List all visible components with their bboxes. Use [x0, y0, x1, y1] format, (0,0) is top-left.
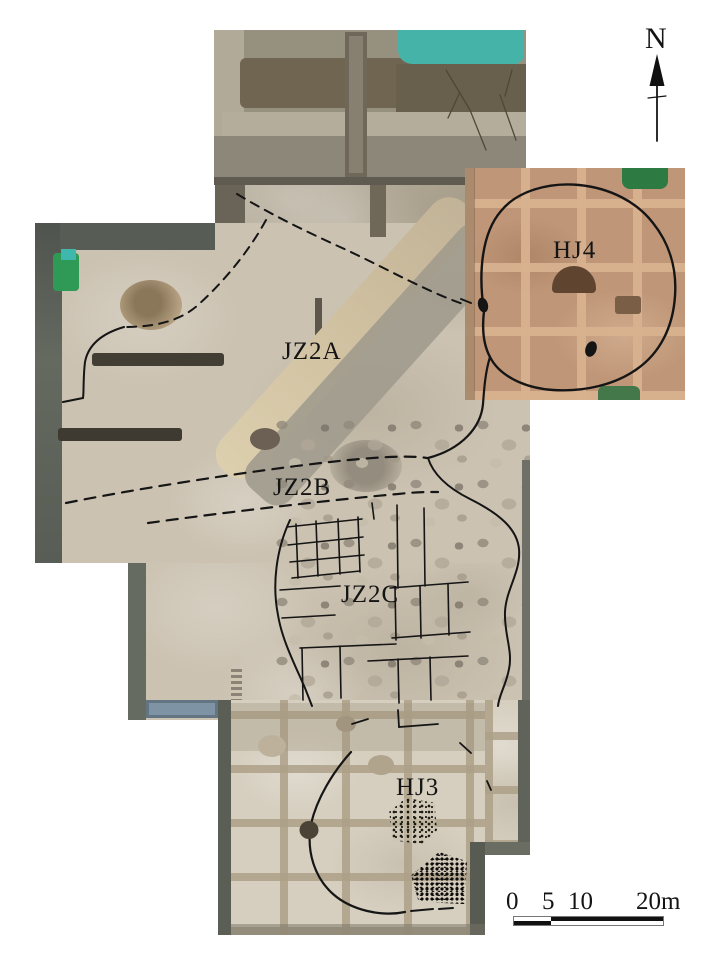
hj4-dark-cell: [615, 296, 641, 314]
feature-label-hj4: HJ4: [553, 237, 596, 265]
vegetation-patch-hj4-top: [622, 168, 668, 189]
scale-seg-0-5-bottom: [514, 921, 551, 925]
scale-seg-5-10-bottom: [551, 921, 588, 925]
teal-debris-spot: [61, 249, 76, 260]
rubble-field-jz2c: [270, 415, 530, 715]
scale-bar-graphic: [513, 916, 664, 926]
zone-label-jz2c: JZ2C: [341, 581, 399, 609]
hj4-left-shade: [465, 168, 475, 400]
north-arrow-glyph: [648, 54, 666, 141]
top-baulk-edge: [60, 223, 215, 250]
hj3-pit-a: [258, 735, 286, 757]
north-arrow-crossbar: [648, 96, 666, 98]
hj3-pit-c: [368, 755, 394, 775]
zone-label-jz2b: JZ2B: [273, 474, 331, 502]
hj3-pit-b: [336, 716, 356, 732]
round-pit-west: [120, 280, 182, 330]
trench-slot-b: [58, 428, 182, 441]
photo-main-body: [35, 185, 530, 720]
site-orthophoto-figure: JZ2A JZ2B JZ2C HJ4 HJ3 N 0 5 10 20m: [0, 0, 720, 976]
blue-strip-feature: [146, 700, 218, 718]
hj4-arch-feature: [552, 266, 596, 293]
trench-slot-a: [92, 353, 224, 366]
trench-north: [370, 185, 386, 237]
photo-hj4-block: [465, 168, 685, 400]
hj3-left-baulk: [218, 700, 231, 935]
north-label: N: [645, 22, 668, 56]
center-trench: [345, 32, 367, 177]
feature-label-hj3: HJ3: [396, 774, 439, 802]
scale-seg-10-20-bottom: [588, 921, 663, 925]
photo-top-strip: [214, 30, 526, 185]
hj3-step-right-edge: [518, 700, 530, 848]
hj3-step-down-edge: [470, 842, 485, 935]
zone-label-jz2a: JZ2A: [282, 338, 342, 366]
vegetation-patch-hj4-bottom: [598, 386, 640, 400]
scale-bar-row-bottom: [514, 921, 663, 925]
pond-teal: [398, 30, 524, 64]
field-light-band: [222, 112, 526, 136]
scale-tick-5: 5: [542, 888, 555, 916]
north-arrow-head: [650, 54, 665, 86]
scale-tick-20m: 20m: [636, 888, 680, 916]
field-row-dark-a: [240, 58, 422, 108]
lower-left-baulk: [128, 563, 146, 720]
right-baulk-edge: [522, 460, 530, 718]
scale-tick-10: 10: [568, 888, 593, 916]
scale-tick-0: 0: [506, 888, 519, 916]
hj3-bottom-shade: [231, 924, 485, 935]
connector-dark-end: [215, 185, 245, 225]
photo-hj3-block: [218, 700, 530, 935]
